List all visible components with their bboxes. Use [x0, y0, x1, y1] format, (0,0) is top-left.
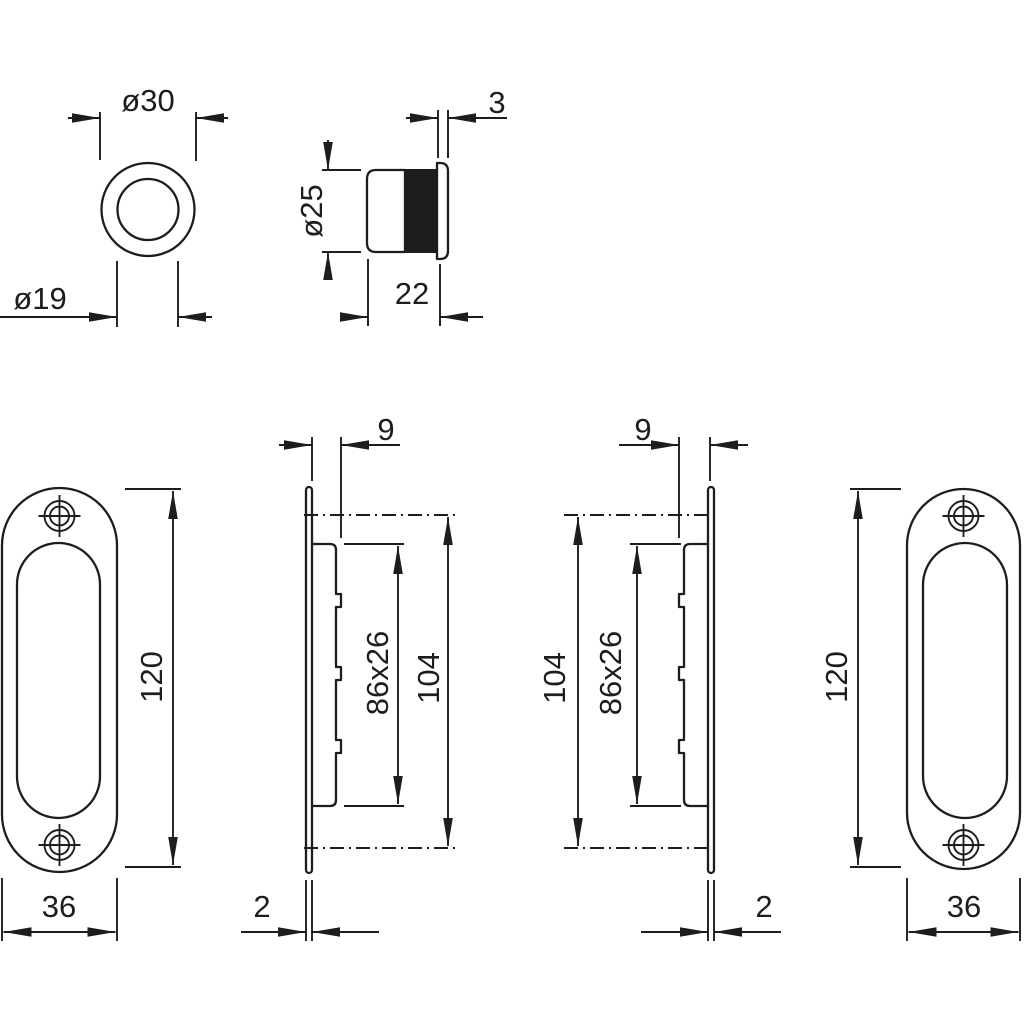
background	[0, 0, 1024, 1024]
dim-label-outer-diameter: ø30	[121, 83, 174, 118]
dim-label-pull-width: 36	[947, 889, 981, 924]
socket-flange	[437, 163, 448, 259]
dim-label-plate-thickness: 2	[253, 889, 270, 924]
dim-label-pull-width: 36	[42, 889, 76, 924]
socket-body	[367, 170, 405, 252]
dim-label-pull-height: 120	[134, 651, 169, 703]
dim-label-recess-height: 104	[411, 652, 446, 704]
dim-label-socket-diameter: ø25	[294, 184, 329, 237]
dim-label-plate-thickness: 2	[755, 889, 772, 924]
dim-label-pull-height: 120	[819, 651, 854, 703]
dim-label-socket-depth: 22	[395, 276, 429, 311]
drawing-page: ø30 ø19 ø25 22	[0, 0, 1024, 1024]
dim-label-body-depth: 9	[634, 412, 651, 447]
dim-label-recess-size: 86x26	[360, 631, 395, 715]
socket-insert	[405, 170, 437, 252]
dim-label-inner-diameter: ø19	[13, 281, 66, 316]
dim-label-body-depth: 9	[377, 412, 394, 447]
dim-label-recess-height: 104	[537, 652, 572, 704]
pull-faceplate	[708, 487, 714, 873]
dim-label-flange-thickness: 3	[488, 85, 505, 120]
dim-label-recess-size: 86x26	[593, 631, 628, 715]
pull-faceplate	[306, 487, 312, 873]
technical-drawing: ø30 ø19 ø25 22	[0, 0, 1024, 1024]
